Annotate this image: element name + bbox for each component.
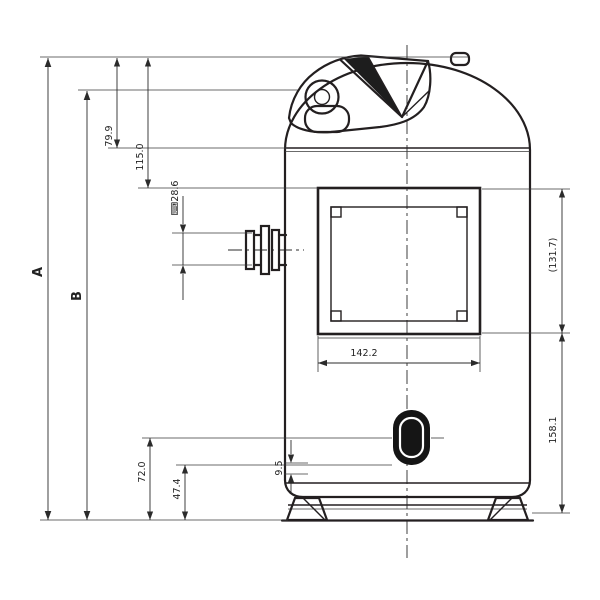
dim-plug-bottom-to-base: 47.4 <box>172 465 188 520</box>
arrowhead <box>471 360 480 366</box>
dim-label-plug-bottom-to-base: 47.4 <box>172 478 183 499</box>
pipe-ring-3 <box>272 230 279 270</box>
sight-plug <box>393 410 444 465</box>
arrowhead <box>145 180 151 189</box>
bracket-corner-bl <box>331 311 341 321</box>
arrowhead <box>45 511 52 520</box>
dim-top-cap: 79.9 <box>104 58 120 148</box>
dim-label-suction-pipe: ⌨28.6 <box>170 181 181 216</box>
arrowhead <box>147 512 153 521</box>
drawing-canvas: A B 79.9 115.0 ⌨28.6 72.0 <box>0 0 600 600</box>
dim-label-top-cap: 79.9 <box>104 125 115 146</box>
dim-label-bracket-to-base: 158.1 <box>548 416 559 443</box>
dim-label-top-to-bracket: 115.0 <box>135 143 146 170</box>
arrowhead <box>559 325 565 334</box>
dim-plug-center-to-base: 72.0 <box>137 438 153 520</box>
arrowhead <box>145 58 151 67</box>
arrowhead <box>559 189 565 198</box>
bracket-corner-tl <box>331 207 341 217</box>
arrowhead <box>147 438 153 447</box>
extension-lines <box>40 57 570 520</box>
dim-label-shell-height: B <box>70 291 85 301</box>
dim-suction-pipe: ⌨28.6 <box>170 181 186 300</box>
arrowhead <box>288 455 294 464</box>
arrowhead <box>288 474 294 483</box>
dim-label-base-seam: 9.5 <box>274 460 285 475</box>
dim-top-to-bracket: 115.0 <box>135 58 151 188</box>
dim-label-bracket-height: (131.7) <box>548 238 559 273</box>
dim-label-plug-center-to-base: 72.0 <box>137 461 148 482</box>
arrowhead <box>182 465 188 474</box>
dim-bracket-width: 142.2 <box>318 348 480 366</box>
arrowhead <box>559 333 565 342</box>
dim-bracket-to-base: 158.1 <box>548 333 565 513</box>
arrowhead <box>318 360 327 366</box>
dim-label-overall-height: A <box>31 267 46 277</box>
bracket-corner-br <box>457 311 467 321</box>
arrowhead <box>84 91 91 100</box>
bracket-outer-rect <box>318 188 480 334</box>
dome-fitting-nub <box>451 53 469 65</box>
base-feet <box>282 498 533 521</box>
arrowhead <box>45 58 52 67</box>
dim-overall-height: A <box>31 58 51 520</box>
bracket-corner-tr <box>457 207 467 217</box>
arrowhead <box>182 512 188 521</box>
terminal-boss-inner-circle <box>315 90 330 105</box>
arrowhead <box>84 511 91 520</box>
arrowhead <box>559 505 565 514</box>
dim-bracket-height: (131.7) <box>548 189 565 333</box>
dim-label-bracket-width: 142.2 <box>350 348 377 359</box>
arrowhead <box>114 58 120 67</box>
arrowhead <box>180 265 186 274</box>
dim-shell-height: B <box>70 91 90 520</box>
arrowhead <box>180 225 186 234</box>
technical-drawing: A B 79.9 115.0 ⌨28.6 72.0 <box>0 0 600 600</box>
bracket-inner-rect <box>331 207 467 321</box>
mounting-bracket <box>318 188 480 338</box>
